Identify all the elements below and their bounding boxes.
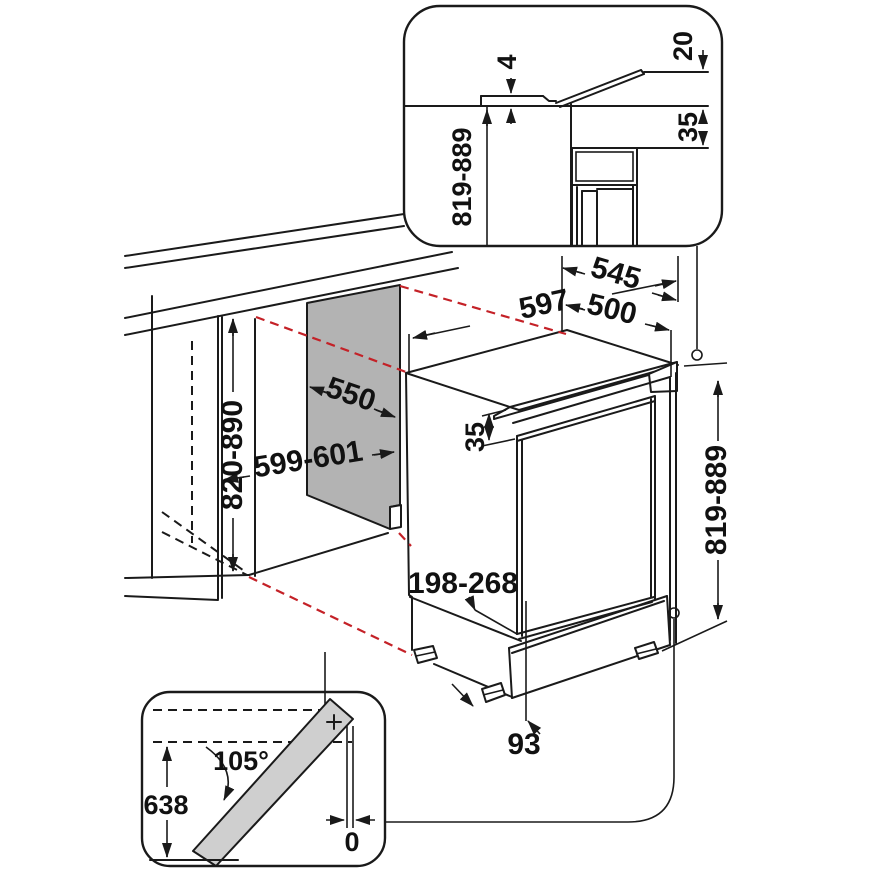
dim-side-clearance: 0 [344,827,359,857]
installation-diagram-page: 597 545 500 550 599-601 820-890 819-889 … [0,0,870,870]
dim-plinth-height: 198-268 [408,567,518,600]
appliance-fridge [406,330,678,702]
dim-worktop-gap: 4 [492,54,522,69]
dim-top-recess: 35 [460,422,490,452]
open-door [193,699,353,866]
dim-appliance-height: 819-889 [700,445,733,555]
dim-appliance-width: 597 [516,283,572,326]
hidden-edge [162,532,247,575]
dim-door-angle: 105° [213,746,269,776]
dim-build-in-height: 819-889 [447,127,477,226]
plinth [509,596,667,648]
dimension-labels: 597 545 500 550 599-601 820-890 819-889 … [143,31,733,857]
door-swing-inset [142,608,679,866]
dim-door-reach: 638 [143,790,188,820]
dim-inset-top-recess: 35 [673,112,703,142]
dim-flap-rise: 20 [668,31,698,61]
hidden-edge [162,512,247,573]
callout-circle-top [692,350,702,360]
worktop-flap [556,70,641,103]
installation-diagram: 597 545 500 550 599-601 820-890 819-889 … [0,0,870,870]
dim-plinth-depth: 93 [507,728,540,761]
dim-niche-height: 820-890 [216,400,249,510]
